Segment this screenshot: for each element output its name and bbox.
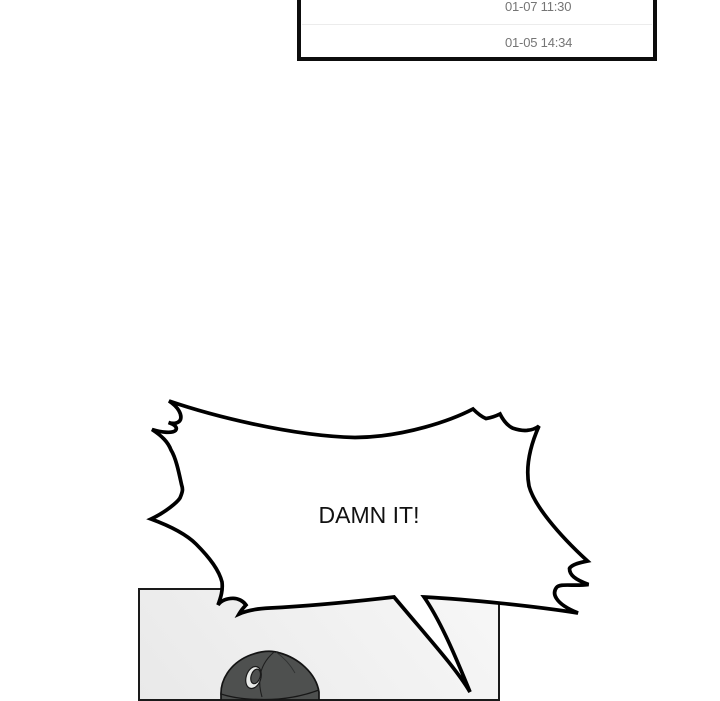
svg-text:DAMN IT!: DAMN IT! [319,502,420,528]
